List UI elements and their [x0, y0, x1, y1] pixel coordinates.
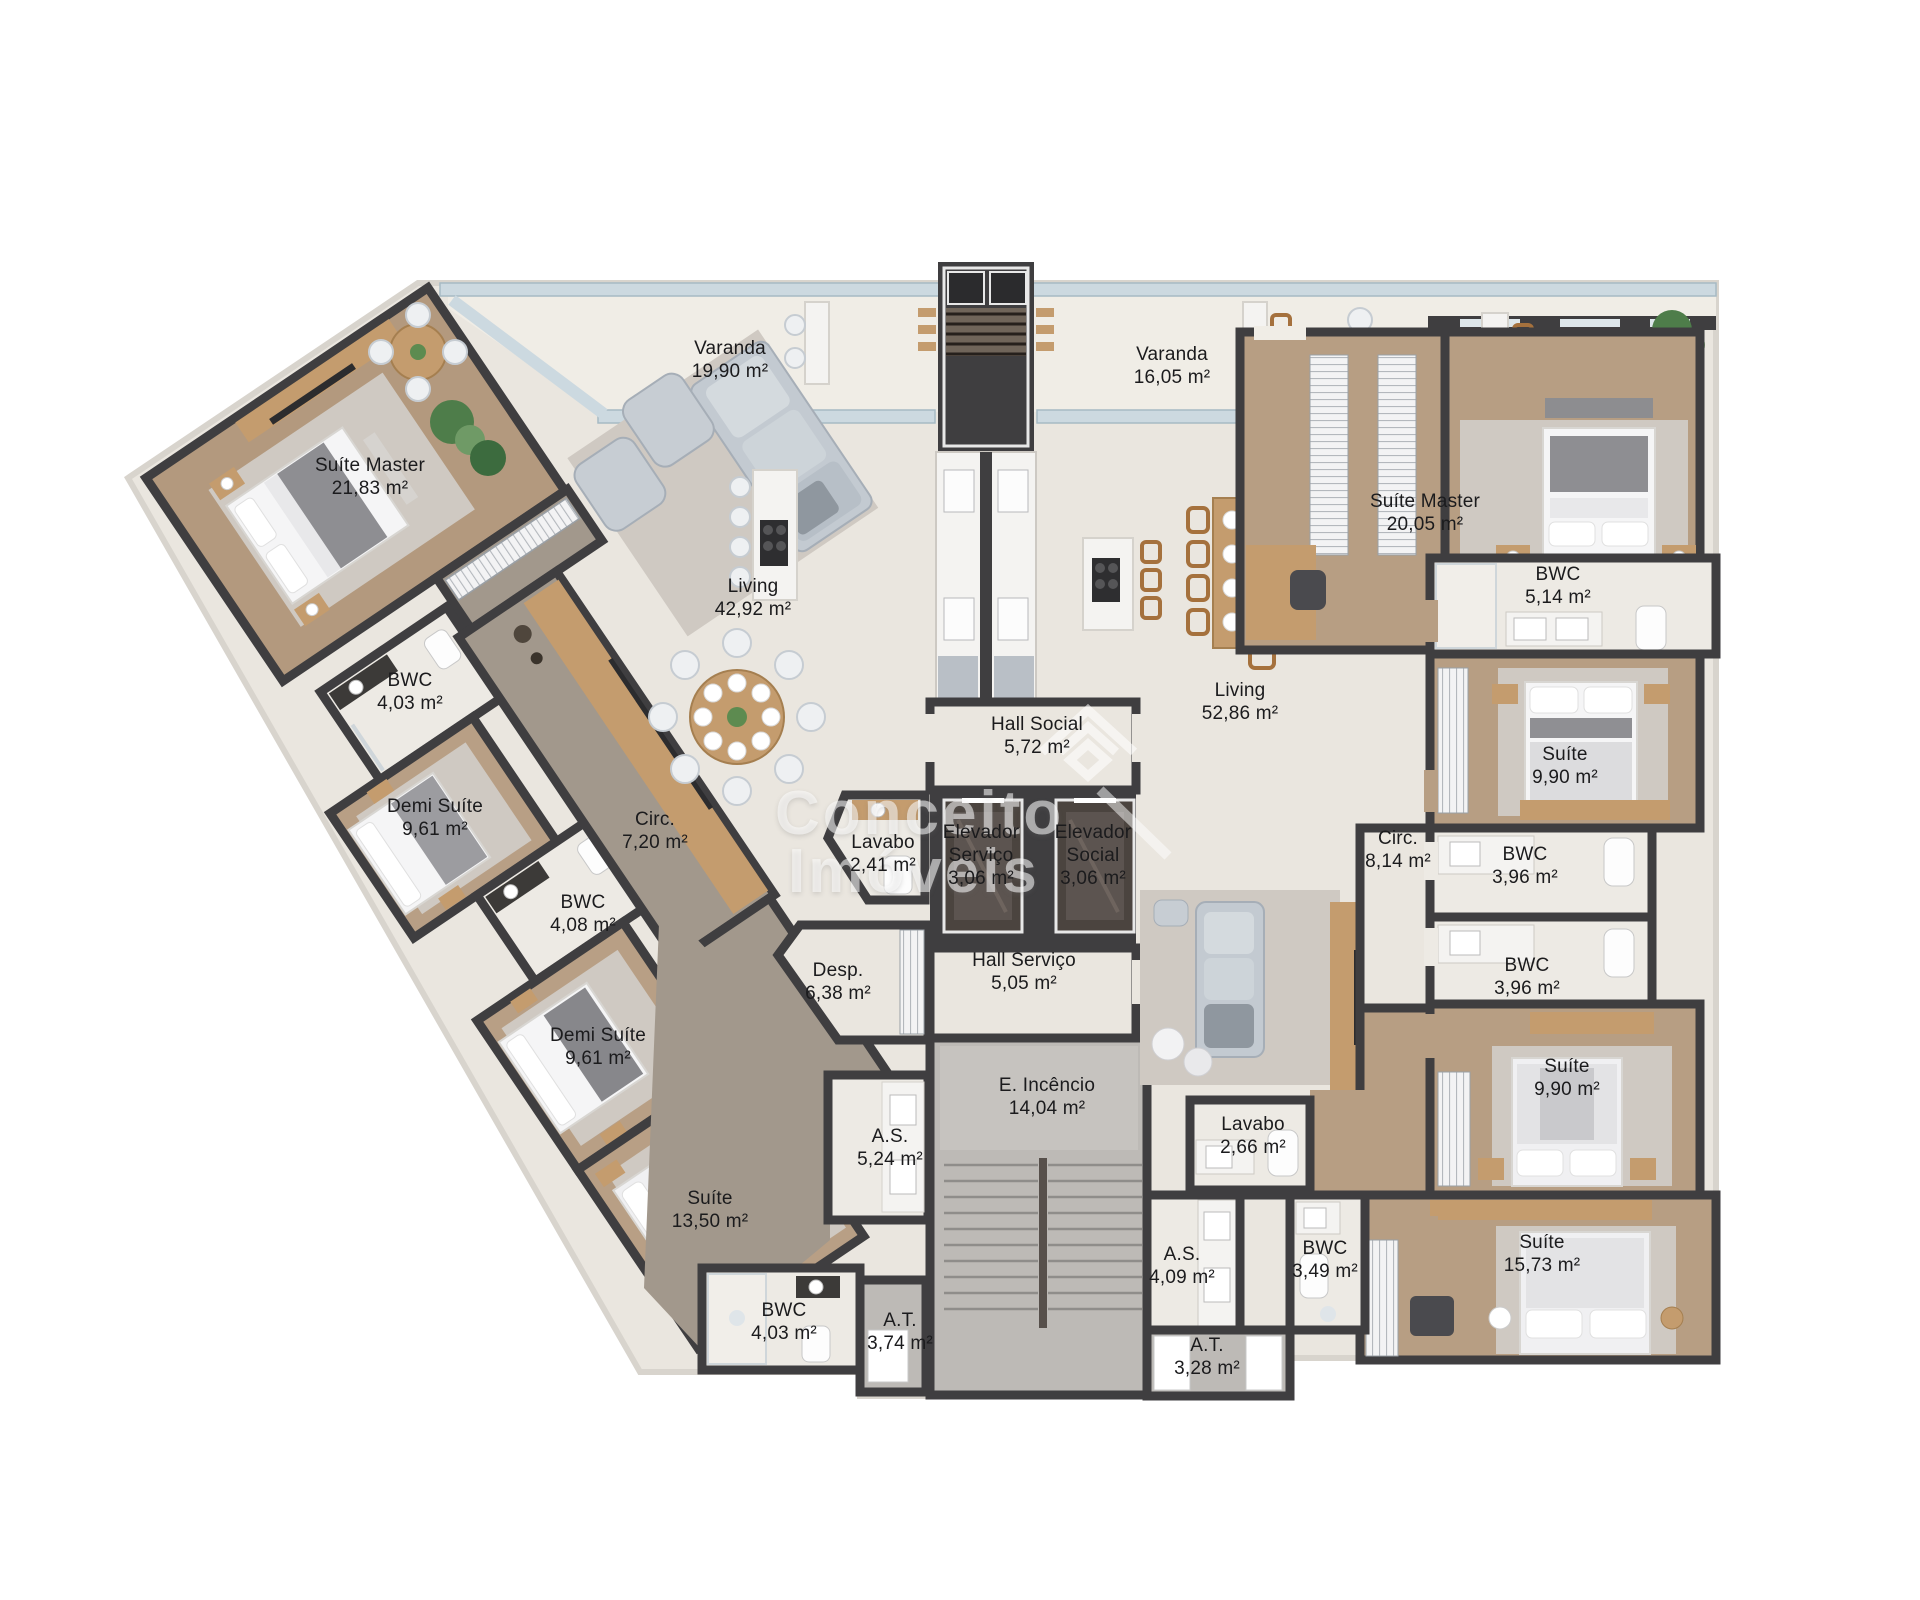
label-escada-incendio: E. Incêncio14,04 m² [999, 1074, 1095, 1120]
label-suite-990-lower: Suíte9,90 m² [1534, 1055, 1600, 1101]
floorplan-page: Conceito Imóveis Varanda19,90 m² Suíte M… [0, 0, 1920, 1600]
label-suite-990-upper: Suíte9,90 m² [1532, 743, 1598, 789]
label-as-409: A.S.4,09 m² [1149, 1243, 1215, 1289]
label-bwc-349: BWC3,49 m² [1292, 1237, 1358, 1283]
label-demi-suite-1: Demi Suíte9,61 m² [387, 795, 483, 841]
label-as-524: A.S.5,24 m² [857, 1125, 923, 1171]
label-demi-suite-2: Demi Suíte9,61 m² [550, 1024, 646, 1070]
label-elevador-servico: Elevador Serviço3,06 m² [937, 821, 1025, 891]
label-hall-social: Hall Social5,72 m² [991, 713, 1083, 759]
label-hall-servico: Hall Serviço5,05 m² [972, 949, 1076, 995]
label-circ-720: Circ.7,20 m² [622, 808, 688, 854]
label-bwc-408: BWC4,08 m² [550, 891, 616, 937]
room-labels: Varanda19,90 m² Suíte Master21,83 m² Liv… [0, 0, 1920, 1600]
label-at-328: A.T.3,28 m² [1174, 1334, 1240, 1380]
label-bwc-396-upper: BWC3,96 m² [1492, 843, 1558, 889]
label-bwc-396-lower: BWC3,96 m² [1494, 954, 1560, 1000]
label-living-left: Living42,92 m² [715, 575, 792, 621]
label-suite-master-left: Suíte Master21,83 m² [315, 454, 425, 500]
label-bwc-403-upper: BWC4,03 m² [377, 669, 443, 715]
label-living-right: Living52,86 m² [1202, 679, 1279, 725]
label-lavabo-241: Lavabo2,41 m² [850, 831, 916, 877]
label-lavabo-266: Lavabo2,66 m² [1220, 1113, 1286, 1159]
label-suite-1573: Suíte15,73 m² [1504, 1231, 1581, 1277]
label-suite-1350: Suíte13,50 m² [672, 1187, 749, 1233]
label-bwc-514: BWC5,14 m² [1525, 563, 1591, 609]
label-elevador-social: Elevador Social3,06 m² [1049, 821, 1137, 891]
label-suite-master-right: Suíte Master20,05 m² [1370, 490, 1480, 536]
label-varanda-right: Varanda16,05 m² [1134, 343, 1211, 389]
label-varanda-left: Varanda19,90 m² [692, 337, 769, 383]
label-bwc-403-lower: BWC4,03 m² [751, 1299, 817, 1345]
label-circ-814: Circ.8,14 m² [1365, 827, 1431, 873]
label-at-374: A.T.3,74 m² [867, 1309, 933, 1355]
label-despensa: Desp.6,38 m² [805, 959, 871, 1005]
